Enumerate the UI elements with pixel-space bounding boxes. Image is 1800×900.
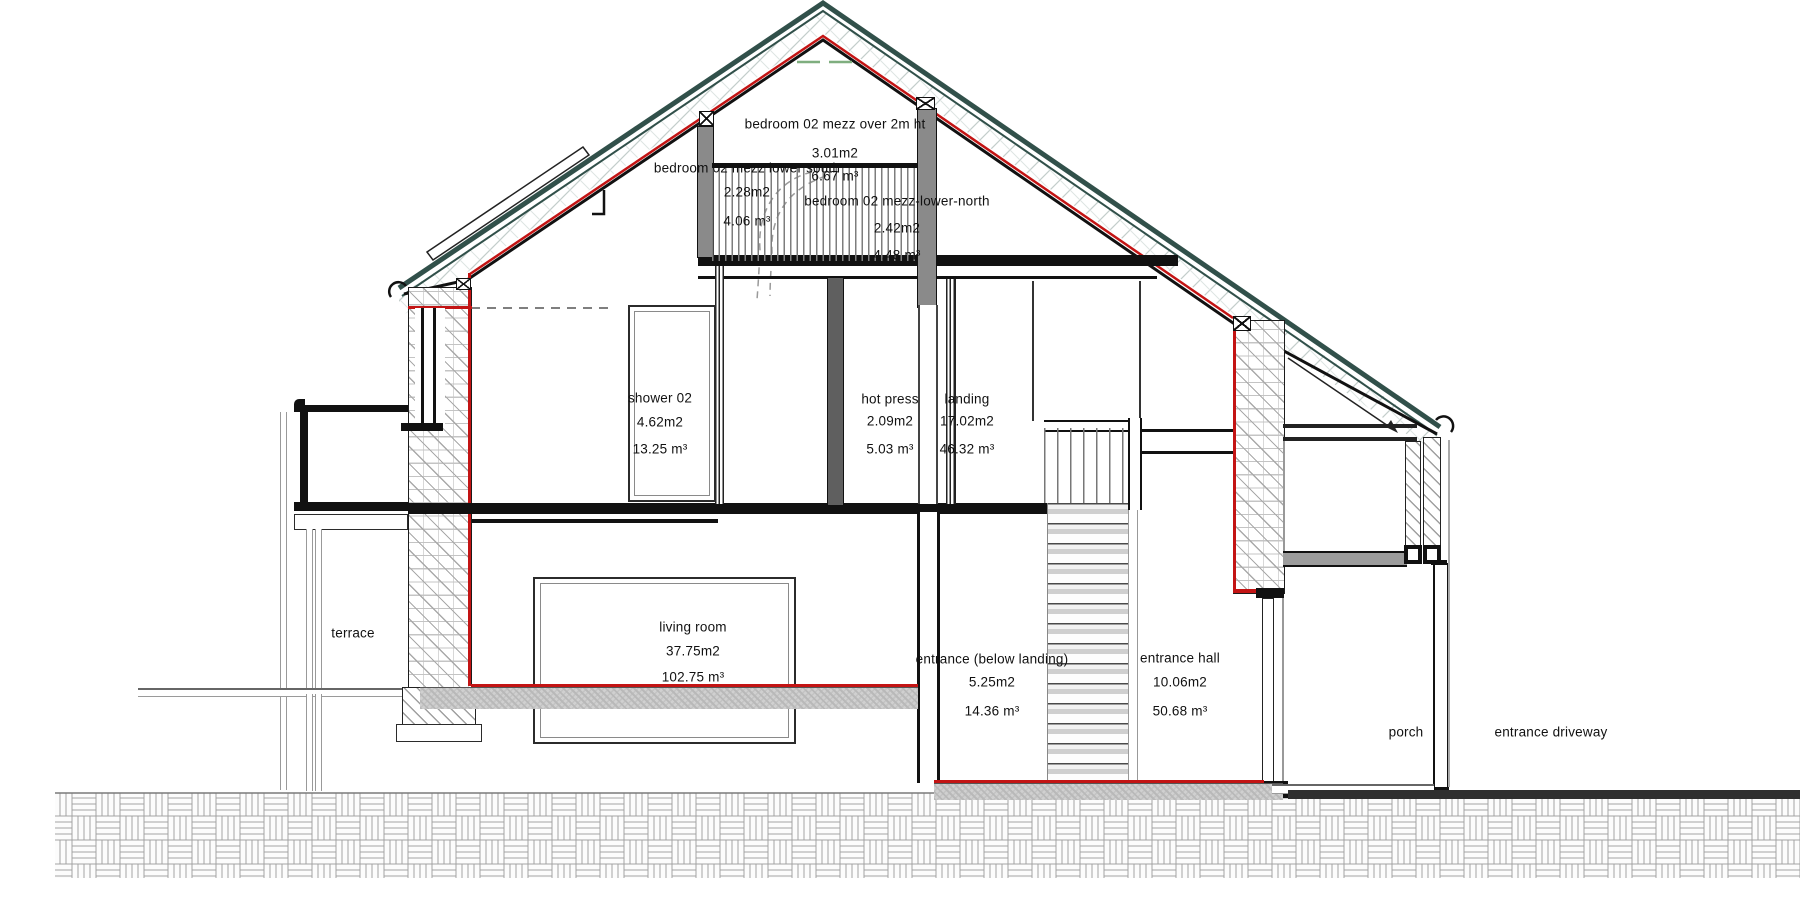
terrace-pier (306, 694, 313, 791)
room-volume: 4.48 m³ (873, 248, 920, 263)
room-volume: 46.32 m³ (940, 442, 995, 457)
mezz-post-left-cap (699, 111, 714, 126)
room-area: 2.28m2 (724, 185, 770, 200)
porch-post-cap (1431, 560, 1447, 565)
living-floor-slab (420, 687, 918, 709)
porch-beam-end (1404, 545, 1422, 564)
left-window-frame2 (433, 308, 436, 426)
terrace-post-lower2 (315, 529, 322, 688)
wall-face-line (1282, 598, 1284, 781)
first-floor-ceiling-line (472, 519, 718, 523)
purlin-bracket (592, 190, 604, 214)
left-wall-red-inner (468, 273, 471, 686)
terrace-back-post (280, 412, 287, 790)
room-volume: 13.25 m³ (633, 442, 688, 457)
left-window-frame (421, 308, 424, 426)
porch-mullion (1405, 441, 1421, 549)
section-drawing: bedroom 02 mezz over 2m ht3.01m26.67 m³b… (0, 0, 1800, 900)
gutter-left (389, 282, 406, 297)
room-area: 4.62m2 (637, 415, 683, 430)
living-entrance-wall (917, 512, 940, 783)
room-area: 2.42m2 (874, 221, 920, 236)
gutter-right (1436, 416, 1453, 432)
ground-paving (55, 793, 1800, 878)
room-area: 10.06m2 (1153, 675, 1207, 690)
room-area: 5.25m2 (969, 675, 1015, 690)
room-area: 2.09m2 (867, 414, 913, 429)
wallplate-right (1233, 316, 1251, 331)
zone-label: entrance driveway (1495, 725, 1608, 740)
terrace-canopy (295, 405, 408, 412)
driveway-surface (1288, 790, 1800, 799)
porch-corner-wall (1423, 437, 1441, 547)
room-name: hot press (861, 392, 918, 407)
room-name: entrance hall (1140, 651, 1220, 666)
living-room-window (533, 577, 796, 744)
stairwell-edge-line2 (1139, 281, 1141, 433)
room-volume: 102.75 m³ (662, 670, 725, 685)
room-name: shower 02 (628, 391, 692, 406)
entrance-door-head (1256, 588, 1284, 598)
right-wall (1233, 320, 1285, 594)
porch-outer-line (1448, 440, 1450, 787)
terrace-post-lower (306, 529, 313, 688)
room-area: 3.01m2 (812, 146, 858, 161)
stairwell-edge-line (1032, 281, 1034, 421)
terrace-floor (294, 502, 410, 511)
wallplate-left (456, 278, 471, 290)
landing-balusters (1044, 428, 1136, 503)
entrance-door (1262, 598, 1274, 783)
room-name: bedroom 02 mezz lower south (654, 161, 840, 176)
terrace-canopy-cap (294, 399, 305, 412)
porch-beam-bottom (1283, 437, 1417, 441)
porch-void-line (1283, 441, 1285, 551)
staircase (1047, 503, 1135, 783)
entrance-floor-slab (934, 783, 1283, 800)
partition-shower (715, 266, 724, 504)
zone-label: porch (1389, 725, 1424, 740)
terrace-deck (138, 688, 410, 697)
room-name: entrance (below landing) (916, 652, 1069, 667)
room-volume: 4.06 m³ (723, 214, 770, 229)
zone-label: terrace (331, 626, 374, 641)
left-window-sill (401, 423, 443, 431)
porch-roof-slab (1283, 551, 1407, 567)
mezz-post-right-cap (916, 97, 935, 110)
room-volume: 50.68 m³ (1153, 704, 1208, 719)
rooflight (427, 147, 589, 260)
terrace-post (300, 412, 308, 504)
hotpress-shelving (918, 305, 938, 504)
living-room-window-inner (540, 583, 789, 738)
room-area: 17.02m2 (940, 414, 994, 429)
first-floor-slab (408, 503, 1137, 514)
left-window-reveal (415, 308, 445, 426)
room-area: 37.75m2 (666, 644, 720, 659)
room-name: living room (659, 620, 726, 635)
room-name: landing (945, 392, 990, 407)
porch-beam-top (1283, 424, 1417, 428)
stair-stringer (1128, 503, 1138, 783)
room-name: bedroom 02 mezz over 2m ht (745, 117, 926, 132)
opening-arrow (1288, 358, 1394, 430)
right-wall-red-inner (1233, 318, 1236, 592)
room-name: bedroom 02 mezz-lower-north (804, 194, 989, 209)
terrace-fascia (294, 514, 408, 530)
porch-post (1433, 563, 1449, 787)
hotpress-wall (827, 277, 844, 506)
terrace-pier2 (315, 694, 322, 791)
footing-left (396, 724, 482, 742)
newel-post (1128, 418, 1142, 510)
stairwell-beam (1139, 429, 1234, 454)
room-volume: 5.03 m³ (866, 442, 913, 457)
room-volume: 14.36 m³ (965, 704, 1020, 719)
